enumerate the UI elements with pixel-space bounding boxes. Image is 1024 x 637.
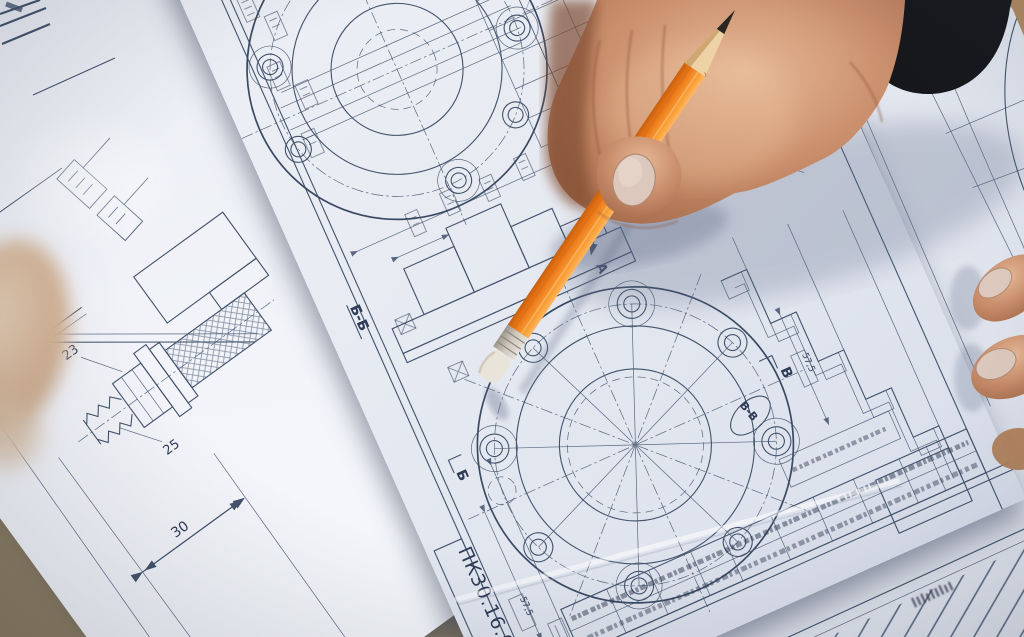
photo-canvas: 23 25 30: [0, 0, 1024, 637]
foreground-overlay: [0, 0, 1024, 637]
paper-crumple-highlight: [18, 120, 168, 240]
knuckle-partial: [992, 428, 1024, 470]
